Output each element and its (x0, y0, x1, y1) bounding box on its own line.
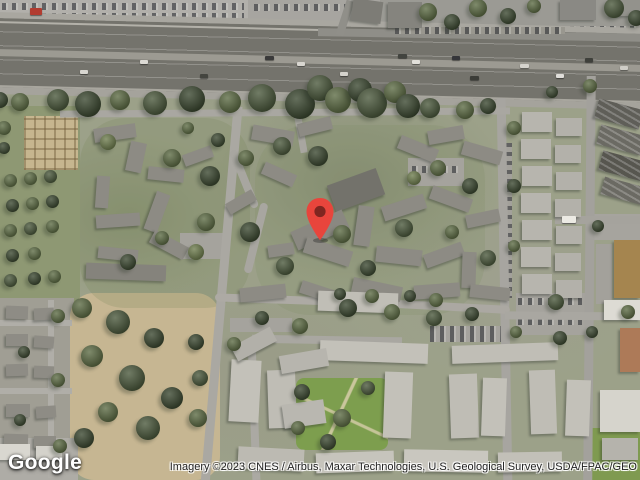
google-logo[interactable]: Google (8, 451, 82, 475)
pin-body (307, 198, 334, 240)
map-building (555, 253, 581, 271)
map-vehicle (265, 56, 274, 60)
map-tree (628, 10, 640, 26)
map-tree (4, 224, 17, 237)
map-tree (480, 98, 496, 114)
map-building (600, 390, 640, 432)
map-building (521, 193, 551, 213)
map-building (34, 335, 55, 348)
map-tree (182, 122, 194, 134)
map-tree (294, 384, 310, 400)
map-building (388, 2, 422, 28)
map-building (560, 0, 596, 20)
map-building (521, 247, 551, 267)
map-building (461, 252, 476, 288)
map-building (556, 172, 582, 190)
map-vehicle (140, 60, 148, 64)
map-tree (546, 86, 558, 98)
map-vehicle (340, 72, 348, 76)
map-tree (144, 328, 164, 348)
map-vehicle (30, 8, 42, 15)
map-tree (333, 409, 351, 427)
map-tree (110, 90, 130, 110)
map-tree (98, 402, 118, 422)
map-tree (553, 331, 567, 345)
map-tree (500, 8, 516, 24)
map-tree (11, 93, 29, 111)
map-tree (75, 91, 101, 117)
map-vehicle (297, 62, 305, 66)
map-tree (100, 134, 116, 150)
map-tree (334, 288, 346, 300)
map-tree (456, 101, 474, 119)
map-vehicle (80, 70, 88, 74)
map-building (36, 405, 57, 418)
satellite-map[interactable]: Google Imagery ©2023 CNES / Airbus, Maxa… (0, 0, 640, 480)
map-building (522, 220, 552, 240)
location-pin-marker[interactable] (305, 197, 335, 242)
map-tree (143, 91, 167, 115)
map-building (600, 177, 640, 206)
map-tree (420, 98, 440, 118)
map-building (556, 118, 582, 136)
map-ground-patch (430, 326, 508, 342)
map-building (452, 342, 559, 364)
map-tree (120, 254, 136, 270)
map-ground-patch (70, 293, 220, 480)
map-building (228, 359, 261, 422)
map-tree (238, 150, 254, 166)
map-tree (430, 160, 446, 176)
map-building (556, 226, 582, 244)
map-tree (360, 260, 376, 276)
map-tree (407, 171, 421, 185)
map-tree (480, 250, 496, 266)
map-tree (188, 244, 204, 260)
map-tree (46, 195, 59, 208)
map-tree (136, 416, 160, 440)
map-tree (161, 387, 183, 409)
map-building (555, 199, 581, 217)
pin-inner-dot (314, 206, 325, 217)
map-tree (18, 346, 30, 358)
map-building (449, 374, 479, 439)
map-ground-patch (24, 116, 78, 170)
map-tree (44, 170, 57, 183)
map-tree (365, 289, 379, 303)
map-tree (465, 307, 479, 321)
map-tree (462, 178, 478, 194)
map-vehicle (520, 64, 529, 68)
map-tree (292, 318, 308, 334)
map-vehicle (585, 58, 593, 62)
map-tree (508, 240, 520, 252)
map-tree (444, 14, 460, 30)
map-vehicle (412, 60, 420, 64)
map-building (555, 145, 581, 163)
map-tree (28, 272, 41, 285)
map-tree (72, 298, 92, 318)
map-tree (273, 137, 291, 155)
map-tree (163, 149, 181, 167)
map-building (529, 370, 557, 435)
map-tree (26, 197, 39, 210)
map-tree (308, 146, 328, 166)
map-tree (197, 213, 215, 231)
map-tree (291, 421, 305, 435)
map-vehicle (452, 56, 460, 60)
map-vehicle (556, 74, 564, 78)
map-building (6, 364, 28, 377)
map-tree (621, 305, 635, 319)
map-building (522, 274, 552, 294)
map-tree (384, 304, 400, 320)
map-building (522, 166, 552, 186)
map-building (279, 348, 329, 374)
map-building (6, 306, 28, 320)
map-tree (106, 310, 130, 334)
map-tree (48, 270, 61, 283)
map-building (620, 328, 640, 372)
map-tree (357, 88, 387, 118)
map-tree (24, 172, 37, 185)
map-tree (14, 414, 26, 426)
map-building (521, 139, 551, 159)
map-tree (51, 309, 65, 323)
map-building (481, 378, 507, 437)
map-tree (200, 166, 220, 186)
map-building (351, 0, 384, 24)
map-tree (189, 409, 207, 427)
map-tree (276, 257, 294, 275)
map-tree (81, 345, 103, 367)
map-building (602, 438, 638, 460)
map-building (522, 112, 552, 132)
map-tree (395, 219, 413, 237)
map-building (6, 334, 28, 346)
map-tree (507, 179, 521, 193)
map-tree (46, 220, 59, 233)
map-tree (4, 174, 17, 187)
map-tree (179, 86, 205, 112)
map-tree (4, 274, 17, 287)
map-tree (333, 225, 351, 243)
map-building (614, 240, 640, 298)
map-tree (396, 94, 420, 118)
map-tree (28, 247, 41, 260)
map-tree (227, 337, 241, 351)
map-vehicle (562, 216, 576, 223)
map-tree (548, 294, 564, 310)
pin-icon (305, 197, 335, 242)
map-tree (51, 373, 65, 387)
map-vehicle (200, 74, 208, 78)
map-building (95, 176, 110, 209)
map-building (565, 380, 591, 437)
map-tree (248, 84, 276, 112)
map-building (383, 372, 413, 439)
map-tree (445, 225, 459, 239)
map-tree (192, 370, 208, 386)
map-tree (361, 381, 375, 395)
map-tree (404, 290, 416, 302)
map-tree (119, 365, 145, 391)
map-vehicle (398, 54, 407, 58)
map-vehicle (470, 76, 479, 80)
map-tree (47, 89, 69, 111)
map-tree (240, 222, 260, 242)
map-tree (219, 91, 241, 113)
map-tree (320, 434, 336, 450)
map-building (469, 284, 510, 301)
map-tree (255, 311, 269, 325)
map-tree (155, 231, 169, 245)
map-tree (429, 293, 443, 307)
map-tree (74, 428, 94, 448)
map-attribution: Imagery ©2023 CNES / Airbus, Maxar Techn… (170, 461, 637, 473)
map-tree (339, 299, 357, 317)
map-tree (6, 199, 19, 212)
map-tree (419, 3, 437, 21)
map-ground-patch (596, 244, 612, 304)
map-tree (426, 310, 442, 326)
map-ground-patch (395, 27, 565, 34)
map-tree (24, 222, 37, 235)
map-tree (507, 121, 521, 135)
map-tree (211, 133, 225, 147)
map-building (320, 340, 429, 364)
map-tree (586, 326, 598, 338)
map-tree (188, 334, 204, 350)
map-tree (592, 220, 604, 232)
map-road-segment (0, 388, 72, 394)
map-ground-patch (254, 4, 346, 11)
map-tree (6, 249, 19, 262)
map-vehicle (620, 66, 628, 70)
map-tree (583, 79, 597, 93)
map-tree (510, 326, 522, 338)
